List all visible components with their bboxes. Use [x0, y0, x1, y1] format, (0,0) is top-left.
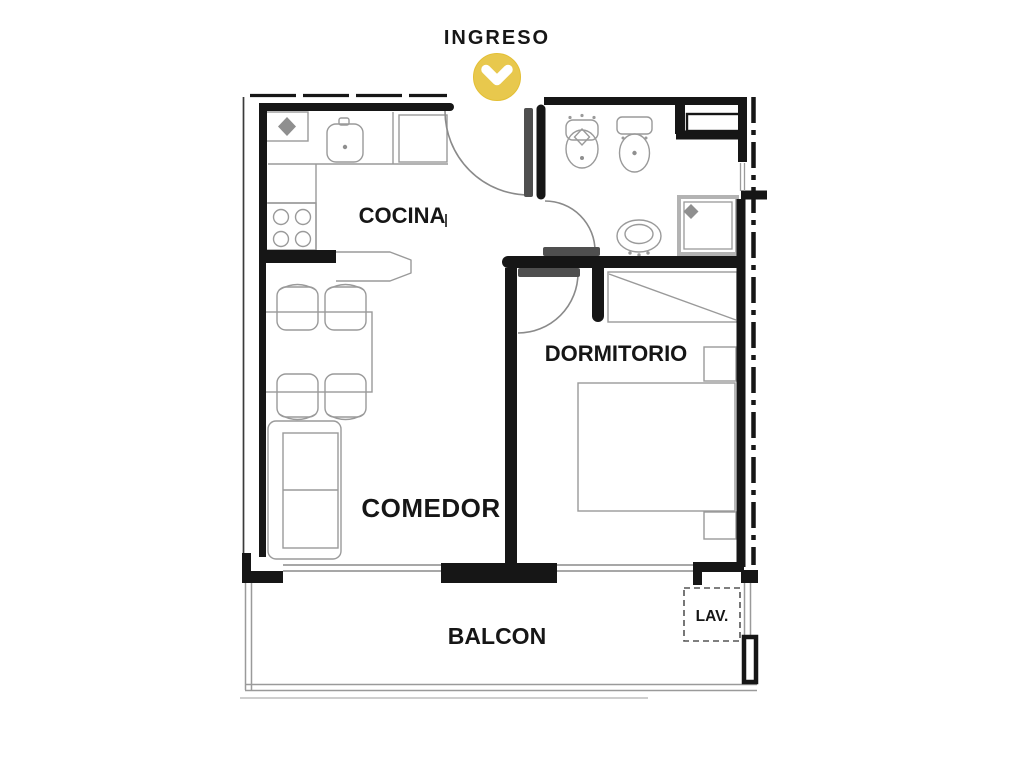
chair: [277, 285, 318, 331]
floor-plan: INGRESO COCINA DORMITORIO COMEDOR BALCON…: [0, 0, 1024, 768]
kitchen-vent: [266, 112, 308, 141]
living-window: [283, 565, 441, 571]
living-bedroom-wall: [505, 268, 517, 565]
stove-burner: [296, 210, 311, 225]
nightstand: [704, 347, 736, 381]
kitchen-counter: [268, 112, 448, 250]
nightstand: [704, 512, 736, 539]
balcony-label: BALCON: [448, 623, 546, 649]
kitchen-bottom-wall: [259, 250, 336, 263]
bottom-center-wall: [441, 563, 557, 583]
living-left-wall: [259, 263, 266, 557]
wardrobe: [608, 272, 737, 322]
bottom-right-stub: [693, 562, 702, 585]
chair: [325, 285, 366, 331]
washbasin: [617, 220, 661, 257]
door-swings: [445, 111, 595, 333]
chair: [277, 374, 318, 420]
bathroom-window: [741, 163, 745, 191]
bottom-right-pier: [741, 570, 758, 583]
dining-table: [265, 312, 372, 392]
dining-table-set: [265, 285, 372, 420]
chair: [325, 374, 366, 420]
stove-burner: [274, 232, 289, 247]
kitchen-label: COCINA: [359, 203, 446, 228]
entrance-door-leaf: [524, 108, 533, 197]
bathroom-door-leaf: [543, 247, 600, 256]
toilet: [617, 117, 652, 172]
entrance-door-swing: [445, 111, 529, 195]
entrance-marker: [474, 54, 521, 101]
kitchen-sink: [327, 118, 363, 162]
entrance-label: INGRESO: [444, 27, 550, 49]
shower-drain-icon: [684, 204, 699, 219]
bath-niche-shelf: [687, 114, 740, 131]
bedroom-door-swing: [518, 273, 578, 333]
bidet: [566, 114, 598, 168]
balcony-right-pier: [744, 637, 756, 682]
kitchen-peninsula-counter: [336, 252, 411, 281]
bathroom-door-swing: [545, 201, 595, 251]
kitchen-left-wall: [259, 103, 267, 263]
laundry-label: LAV.: [696, 608, 729, 625]
vent-diamond-icon: [278, 117, 296, 136]
stove: [266, 203, 316, 250]
bedroom-label: DORMITORIO: [545, 341, 688, 366]
furniture-layer: [265, 112, 737, 559]
floor-plan-drawing: INGRESO COCINA DORMITORIO COMEDOR BALCON…: [0, 0, 1024, 768]
bedroom-window: [557, 565, 693, 571]
living-dining-label: COMEDOR: [361, 493, 500, 523]
bed: [578, 383, 735, 511]
sofa: [268, 421, 341, 559]
bedroom-door-leaf: [518, 268, 580, 277]
shower: [679, 197, 737, 254]
door-leaves: [518, 108, 600, 277]
stove-burner: [274, 210, 289, 225]
refrigerator: [399, 115, 447, 162]
stove-burner: [296, 232, 311, 247]
bottom-left-pier: [242, 571, 283, 583]
